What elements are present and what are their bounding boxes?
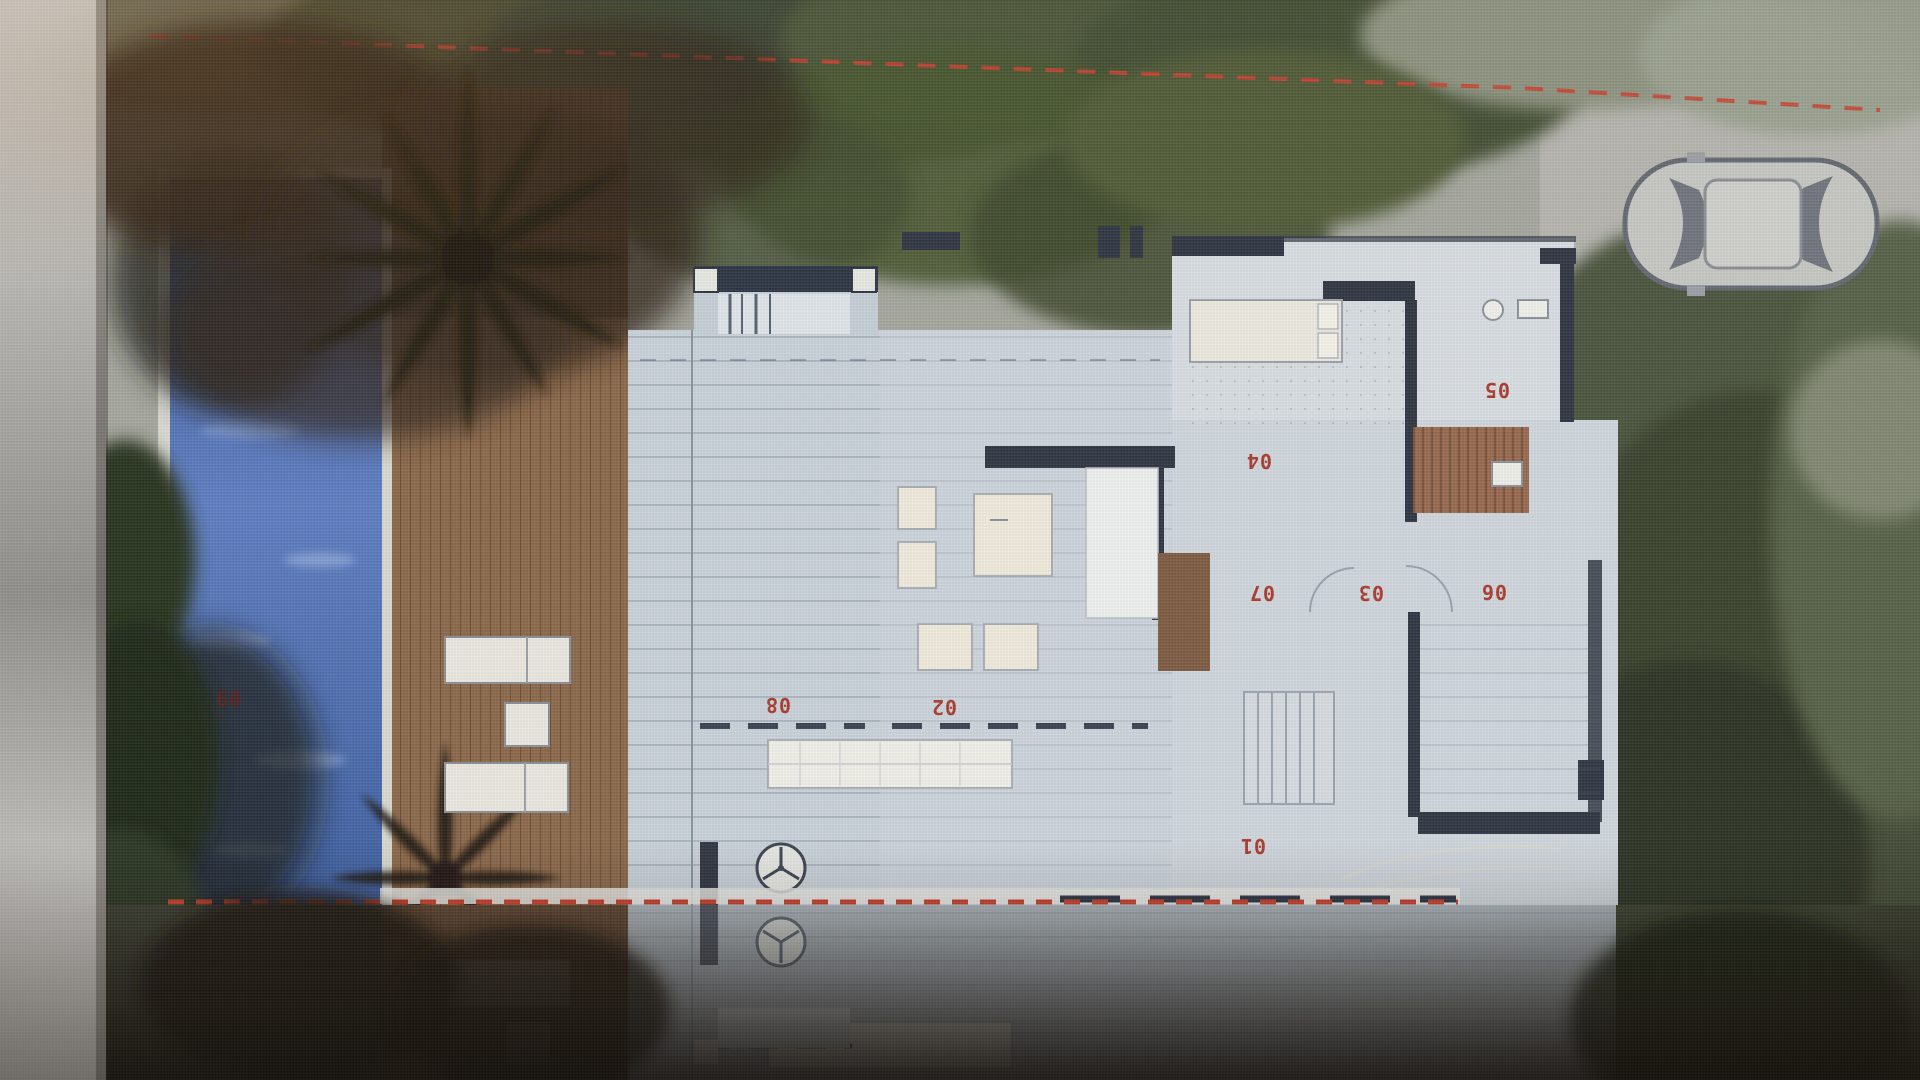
car-top-view — [1625, 152, 1877, 296]
room-label: 01 — [1240, 834, 1266, 858]
site-plan-drawing: 08 02 04 05 07 03 06 01 09 — [0, 0, 1920, 1080]
stair-core — [1158, 553, 1210, 671]
edge-shadow — [96, 0, 108, 1080]
garage-floor — [1420, 615, 1600, 810]
room-label: 04 — [1246, 449, 1272, 473]
mirrored-adjacent-unit — [106, 890, 1920, 1080]
dining-table — [768, 740, 1012, 788]
room-label: 07 — [1249, 581, 1275, 605]
toilet — [1492, 462, 1522, 486]
room-label: 02 — [931, 695, 957, 719]
screen-edge-strip — [0, 0, 106, 1080]
car-mirror — [1687, 286, 1705, 296]
column — [852, 268, 876, 292]
kitchen-island — [974, 494, 1052, 576]
car-roof — [1705, 180, 1801, 268]
column — [694, 268, 718, 292]
pool-label: 09 — [215, 686, 241, 710]
fan-symbol-icon — [757, 844, 805, 892]
bedroom-furniture — [1180, 300, 1406, 435]
car-mirror — [1687, 152, 1705, 162]
screen-photo-of-site-plan: 08 02 04 05 07 03 06 01 09 — [0, 0, 1920, 1080]
wood-floor-bathroom — [1413, 427, 1529, 513]
room-label: 05 — [1484, 378, 1510, 402]
staircase — [1244, 692, 1334, 804]
room-label: 06 — [1481, 580, 1507, 604]
rug — [1086, 468, 1158, 618]
room-label: 08 — [765, 693, 791, 717]
room-label: 03 — [1358, 581, 1384, 605]
entry-glazing — [694, 266, 878, 334]
